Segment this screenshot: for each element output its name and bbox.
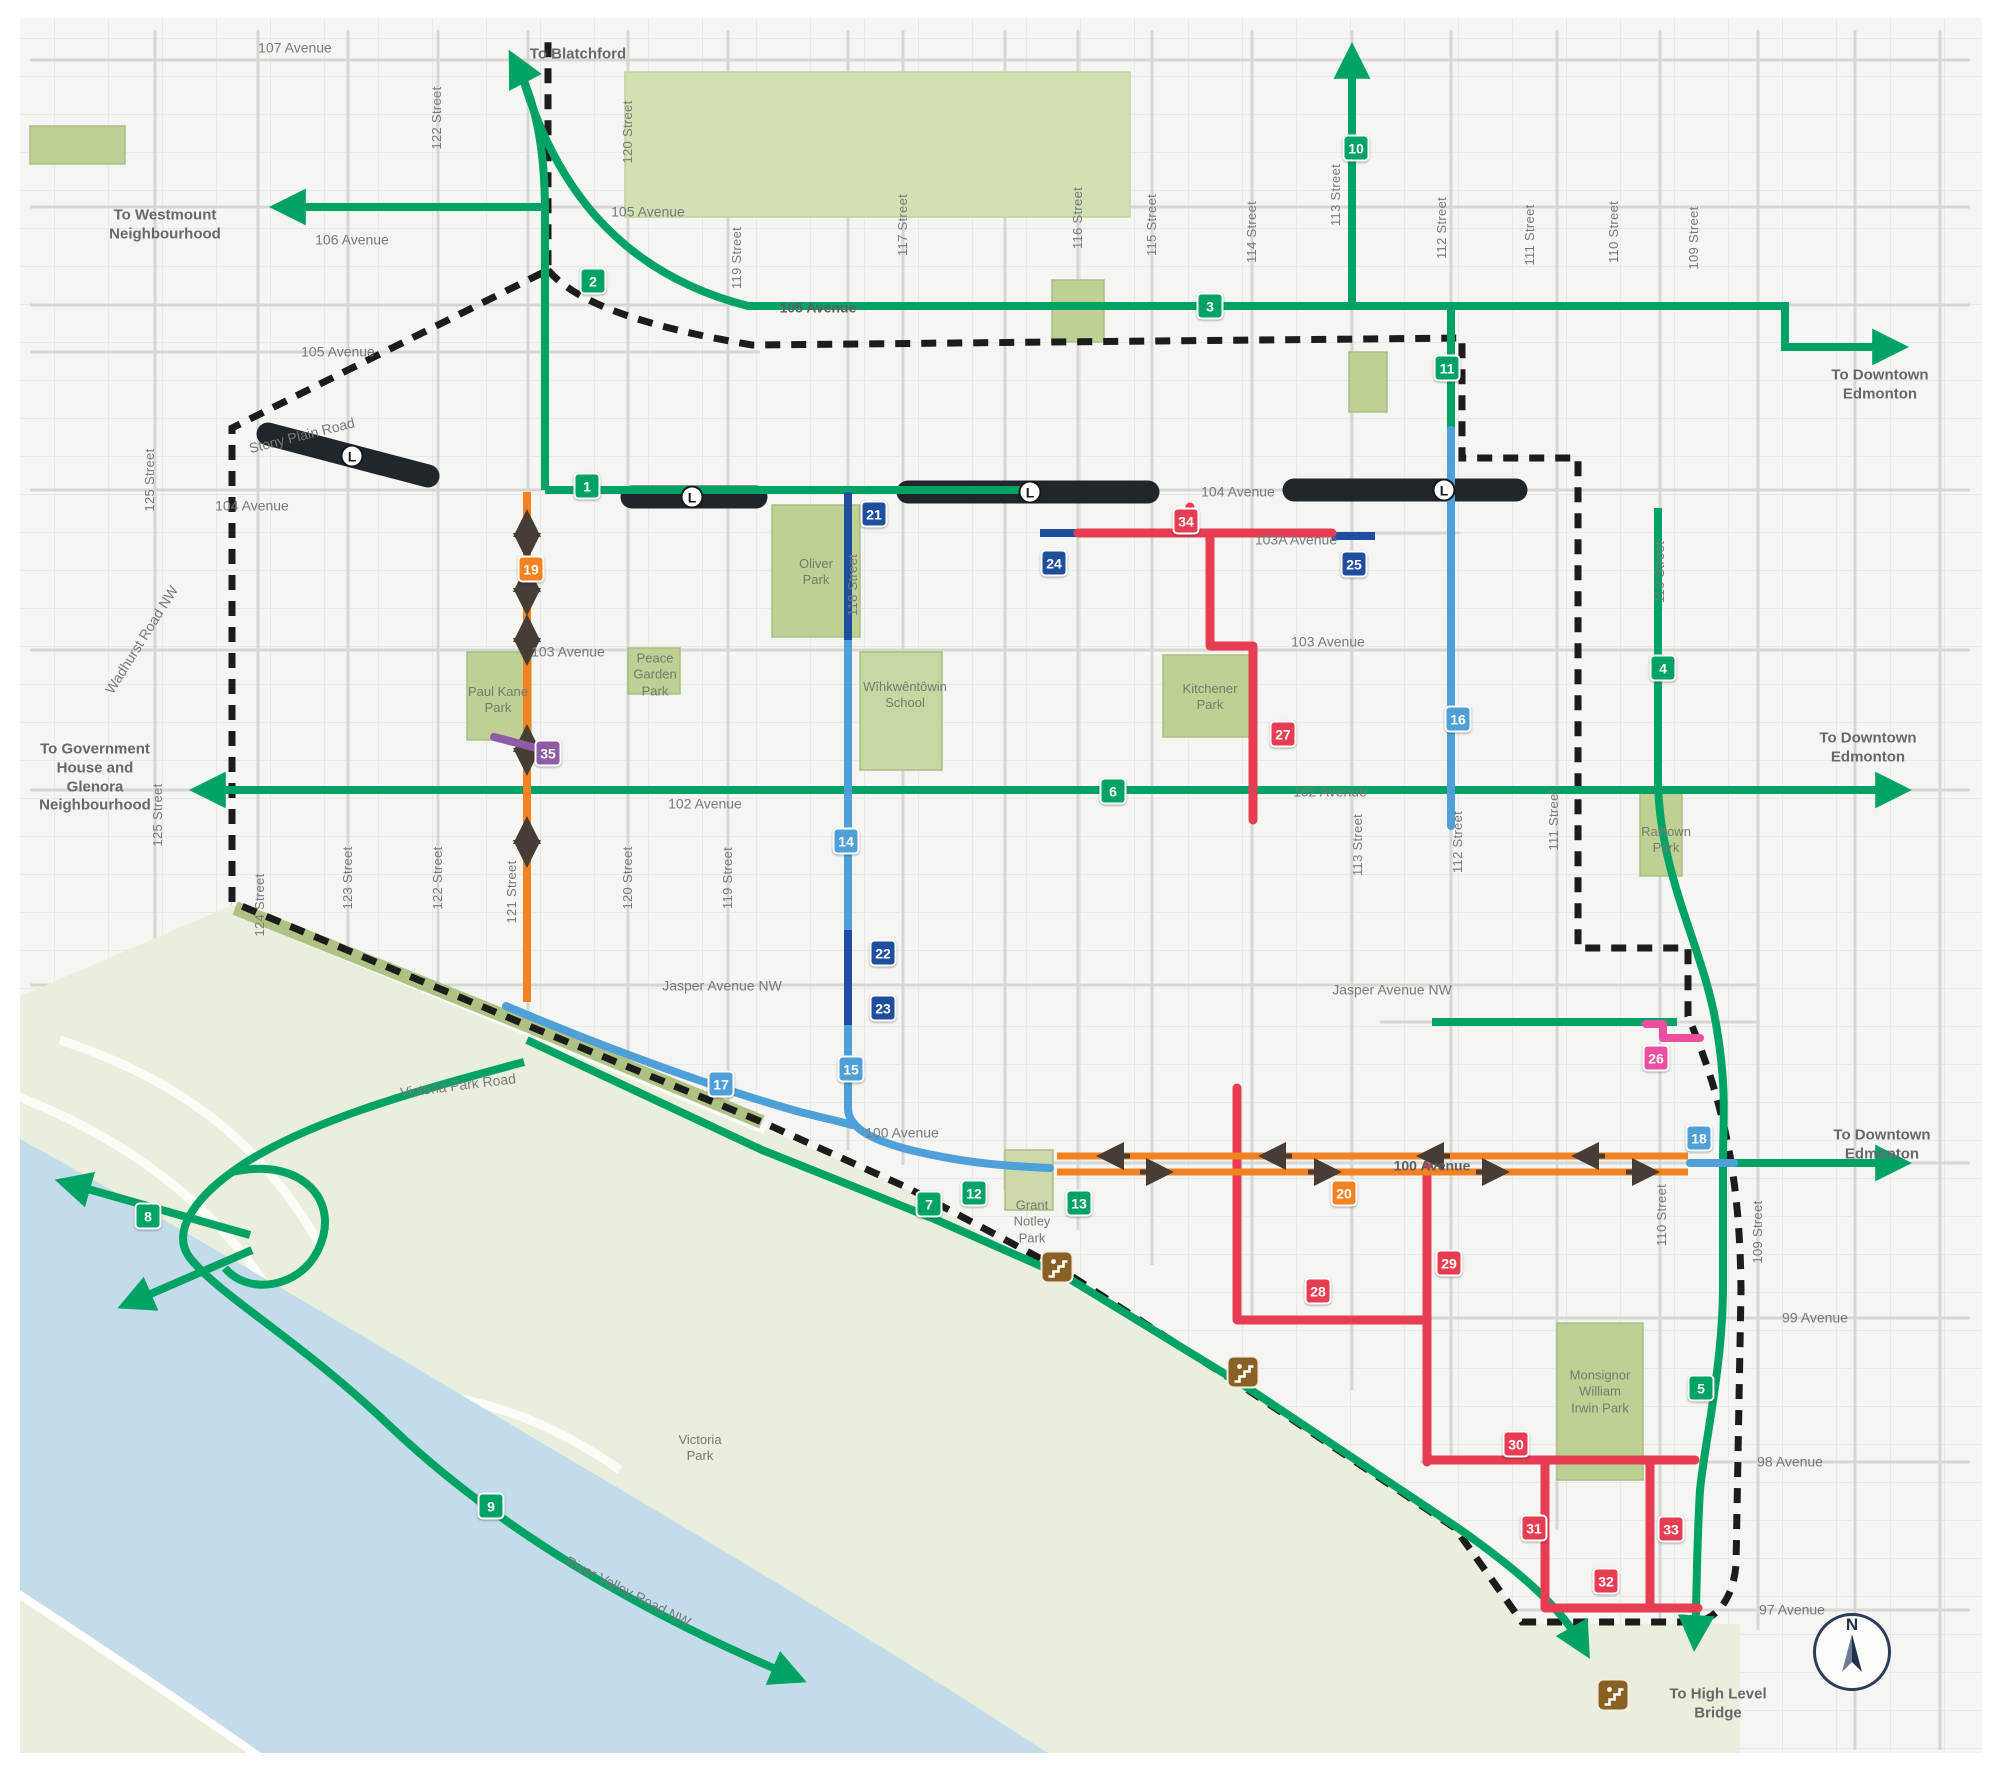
compass-north-label: N [1816,1616,1888,1634]
route-badge-17: 17 [708,1071,735,1098]
route-badge-4: 4 [1650,655,1677,682]
lrt-station-icon: L [1433,479,1456,502]
route-badge-5: 5 [1688,1375,1715,1402]
compass-needle-icon [1830,1632,1874,1676]
route-badge-18: 18 [1686,1125,1713,1152]
route-badge-1: 1 [574,473,601,500]
route-badge-3: 3 [1197,293,1224,320]
stairs-access-icon [1041,1251,1074,1284]
route-badge-8: 8 [135,1203,162,1230]
route-badge-29: 29 [1436,1250,1463,1277]
lrt-station-icon: L [1019,481,1042,504]
lrt-station-icon: L [681,486,704,509]
lrt-station-icon: L [341,445,364,468]
route-badge-7: 7 [916,1191,943,1218]
route-badge-23: 23 [870,995,897,1022]
route-badge-14: 14 [833,828,860,855]
route-badge-6: 6 [1100,778,1127,805]
route-badge-24: 24 [1041,550,1068,577]
route-badge-20: 20 [1331,1180,1358,1207]
route-badge-25: 25 [1341,551,1368,578]
basemap-canvas [0,0,2000,1771]
route-badge-21: 21 [861,501,888,528]
route-badge-11: 11 [1434,355,1461,382]
north-compass: N [1813,1613,1891,1691]
route-badge-33: 33 [1658,1516,1685,1543]
route-badge-22: 22 [870,940,897,967]
route-badge-10: 10 [1343,135,1370,162]
route-badge-32: 32 [1593,1568,1620,1595]
route-badge-35: 35 [535,740,562,767]
route-badge-2: 2 [580,268,607,295]
route-badge-27: 27 [1270,721,1297,748]
route-badge-19: 19 [518,556,545,583]
stairs-access-icon [1597,1679,1630,1712]
mobility-network-map: 107 Avenue106 Avenue105 Avenue105 Avenue… [0,0,2000,1771]
route-badge-12: 12 [961,1180,988,1207]
route-badge-26: 26 [1643,1045,1670,1072]
route-badge-28: 28 [1305,1278,1332,1305]
route-badge-9: 9 [478,1493,505,1520]
stairs-access-icon [1227,1356,1260,1389]
route-badge-13: 13 [1066,1190,1093,1217]
route-badge-34: 34 [1173,508,1200,535]
page-margin-right [1982,0,2000,1771]
page-margin-top [0,0,2000,18]
route-badge-31: 31 [1521,1515,1548,1542]
route-badge-30: 30 [1503,1431,1530,1458]
page-margin-bottom [0,1753,2000,1771]
route-badge-16: 16 [1445,706,1472,733]
route-badge-15: 15 [838,1056,865,1083]
page-margin-left [0,0,20,1771]
